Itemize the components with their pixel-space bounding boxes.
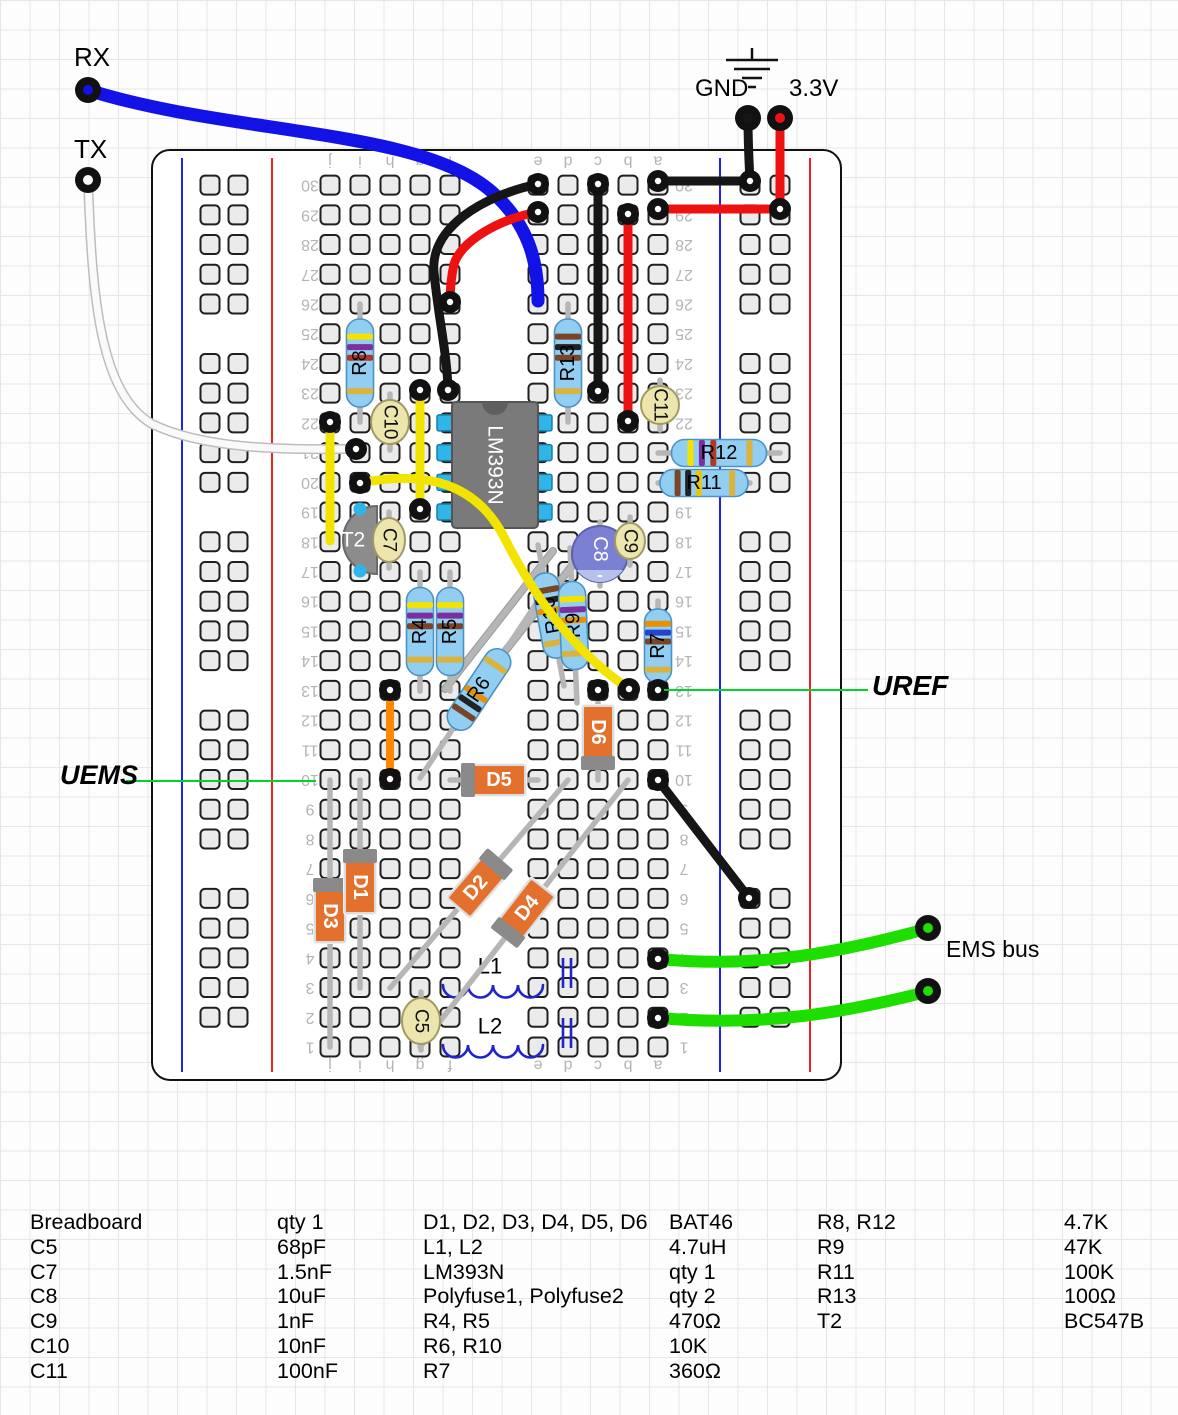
svg-text:R11: R11 — [686, 472, 721, 494]
svg-text:R8: R8 — [349, 350, 371, 376]
parts-cell-c5-r3: R11 — [817, 1262, 855, 1284]
parts-cell-c4-r1: BAT46 — [669, 1212, 733, 1234]
svg-text:25: 25 — [675, 325, 693, 342]
parts-cell-c6-r1: 4.7K — [1064, 1212, 1108, 1234]
svg-text:10: 10 — [675, 771, 693, 788]
parts-cell-c2-r6: 10nF — [277, 1336, 326, 1358]
svg-text:i: i — [358, 153, 362, 170]
parts-cell-c3-r7: R7 — [423, 1361, 450, 1383]
parts-cell-c1-r1: Breadboard — [30, 1212, 142, 1234]
parts-cell-c3-r4: Polyfuse1, Polyfuse2 — [423, 1286, 624, 1308]
component-r8: R8 — [347, 304, 374, 422]
svg-text:c: c — [594, 153, 602, 170]
svg-text:b: b — [623, 153, 632, 170]
svg-text:8: 8 — [679, 830, 688, 847]
parts-cell-c6-r4: 100Ω — [1064, 1286, 1116, 1308]
svg-text:a: a — [653, 1057, 662, 1074]
parts-cell-c1-r6: C10 — [30, 1336, 69, 1358]
svg-text:11: 11 — [676, 741, 693, 758]
parts-cell-c4-r7: 360Ω — [669, 1361, 721, 1383]
svg-text:D1: D1 — [349, 874, 371, 900]
svg-text:20: 20 — [301, 474, 319, 491]
parts-cell-c6-r3: 100K — [1064, 1262, 1114, 1284]
svg-text:14: 14 — [301, 652, 319, 669]
svg-text:26: 26 — [675, 296, 693, 313]
svg-text:D3: D3 — [319, 903, 341, 929]
rx-pin — [75, 77, 101, 103]
svg-text:C11: C11 — [650, 388, 671, 421]
svg-text:R13: R13 — [557, 345, 579, 382]
svg-text:3: 3 — [679, 979, 688, 996]
breadboard-figure: 1122334455667788991010111112121313141415… — [0, 0, 1178, 1415]
svg-text:C7: C7 — [379, 528, 400, 552]
svg-text:1: 1 — [305, 1039, 314, 1056]
svg-text:h: h — [386, 1057, 395, 1074]
parts-cell-c1-r5: C9 — [30, 1311, 57, 1333]
parts-cell-c1-r3: C7 — [30, 1262, 57, 1284]
svg-text:19: 19 — [675, 504, 693, 521]
svg-text:d: d — [564, 1057, 573, 1074]
svg-text:f: f — [447, 1057, 452, 1074]
svg-text:18: 18 — [301, 533, 319, 550]
svg-text:6: 6 — [679, 890, 688, 907]
parts-cell-c2-r7: 100nF — [277, 1361, 338, 1383]
svg-text:19: 19 — [301, 504, 319, 521]
svg-text:22: 22 — [675, 414, 693, 431]
tx-label: TX — [74, 136, 107, 162]
svg-text:4: 4 — [305, 949, 314, 966]
parts-cell-c5-r2: R9 — [817, 1237, 844, 1259]
svg-text:L2: L2 — [478, 1014, 502, 1039]
component-d6: D6 — [581, 691, 615, 780]
parts-cell-c3-r2: L1, L2 — [423, 1237, 483, 1259]
svg-text:28: 28 — [301, 236, 319, 253]
rx-label: RX — [74, 44, 110, 70]
uems-label: UEMS — [60, 762, 138, 789]
parts-cell-c6-r2: 47K — [1064, 1237, 1102, 1259]
svg-text:28: 28 — [675, 236, 693, 253]
svg-text:D5: D5 — [486, 769, 512, 791]
svg-text:b: b — [623, 1057, 632, 1074]
svg-text:T2: T2 — [341, 529, 366, 552]
svg-text:29: 29 — [301, 206, 319, 223]
parts-cell-c5-r1: R8, R12 — [817, 1212, 896, 1234]
parts-cell-c3-r3: LM393N — [423, 1262, 504, 1284]
parts-cell-c5-r5: T2 — [817, 1311, 842, 1333]
svg-text:10: 10 — [301, 771, 319, 788]
svg-text:18: 18 — [675, 533, 693, 550]
svg-text:27: 27 — [675, 266, 693, 283]
ems-pin-2 — [915, 978, 941, 1004]
svg-text:j: j — [328, 153, 333, 170]
svg-text:1: 1 — [679, 1039, 688, 1056]
svg-text:e: e — [533, 153, 542, 170]
parts-cell-c5-r4: R13 — [817, 1286, 856, 1308]
svg-text:R4: R4 — [409, 619, 431, 645]
ems-pin-1 — [915, 915, 941, 941]
svg-text:23: 23 — [301, 385, 319, 402]
ems-bus-label: EMS bus — [946, 938, 1039, 961]
svg-text:15: 15 — [675, 622, 693, 639]
v33-label: 3.3V — [789, 77, 838, 101]
svg-text:D6: D6 — [587, 719, 609, 745]
svg-text:8: 8 — [305, 830, 314, 847]
svg-text:12: 12 — [301, 712, 319, 729]
svg-text:C9: C9 — [620, 529, 641, 553]
svg-text:15: 15 — [301, 622, 319, 639]
parts-cell-c4-r4: qty 2 — [669, 1286, 716, 1308]
svg-text:3: 3 — [305, 979, 314, 996]
component-r12: R12 — [658, 440, 780, 467]
v33-pin — [767, 105, 793, 131]
svg-text:C8: C8 — [589, 536, 611, 562]
svg-text:12: 12 — [675, 712, 693, 729]
parts-cell-c6-r5: BC547B — [1064, 1311, 1144, 1333]
parts-cell-c2-r5: 1nF — [277, 1311, 314, 1333]
svg-text:9: 9 — [305, 801, 314, 818]
svg-text:5: 5 — [679, 920, 688, 937]
gnd-label: GND — [695, 77, 748, 101]
svg-text:26: 26 — [301, 296, 319, 313]
svg-text:C10: C10 — [380, 405, 401, 440]
tx-pin — [75, 167, 101, 193]
svg-text:a: a — [653, 153, 662, 170]
svg-text:c: c — [594, 1057, 602, 1074]
parts-cell-c2-r4: 10uF — [277, 1286, 326, 1308]
component-lm393n: LM393N — [437, 402, 552, 528]
parts-cell-c3-r1: D1, D2, D3, D4, D5, D6 — [423, 1212, 648, 1234]
svg-text:11: 11 — [302, 741, 319, 758]
svg-text:17: 17 — [675, 563, 693, 580]
svg-text:e: e — [533, 1057, 542, 1074]
parts-cell-c2-r1: qty 1 — [277, 1212, 324, 1234]
svg-text:25: 25 — [301, 325, 319, 342]
component-r13: R13 — [555, 304, 582, 422]
svg-text:27: 27 — [301, 266, 319, 283]
parts-cell-c3-r5: R4, R5 — [423, 1311, 490, 1333]
parts-cell-c1-r2: C5 — [30, 1237, 57, 1259]
parts-cell-c2-r2: 68pF — [277, 1237, 326, 1259]
svg-text:R7: R7 — [647, 633, 669, 659]
breadboard-page: 1122334455667788991010111112121313141415… — [0, 0, 1178, 1415]
svg-text:22: 22 — [301, 414, 319, 431]
parts-cell-c4-r5: 470Ω — [669, 1311, 721, 1333]
svg-text:7: 7 — [679, 860, 688, 877]
svg-text:16: 16 — [301, 593, 319, 610]
breadboard-base — [152, 150, 841, 1080]
svg-text:7: 7 — [305, 860, 314, 877]
svg-text:17: 17 — [301, 563, 319, 580]
parts-cell-c3-r6: R6, R10 — [423, 1336, 502, 1358]
parts-cell-c1-r4: C8 — [30, 1286, 57, 1308]
svg-text:C5: C5 — [411, 1009, 432, 1033]
svg-text:d: d — [564, 153, 573, 170]
svg-text:24: 24 — [675, 355, 693, 372]
svg-text:2: 2 — [305, 1009, 314, 1026]
svg-text:-: - — [597, 566, 603, 585]
svg-text:13: 13 — [301, 682, 319, 699]
component-d5: D5 — [450, 763, 538, 797]
uref-label: UREF — [872, 672, 948, 700]
svg-text:i: i — [358, 1057, 362, 1074]
svg-text:30: 30 — [301, 177, 319, 194]
parts-cell-c4-r3: qty 1 — [669, 1262, 716, 1284]
parts-cell-c2-r3: 1.5nF — [277, 1262, 332, 1284]
parts-cell-c4-r2: 4.7uH — [669, 1237, 726, 1259]
component-r11: R11 — [658, 470, 750, 497]
svg-text:g: g — [416, 1057, 425, 1074]
svg-text:24: 24 — [301, 355, 319, 372]
svg-text:j: j — [328, 1057, 333, 1074]
parts-cell-c4-r6: 10K — [669, 1336, 707, 1358]
parts-cell-c1-r7: C11 — [30, 1361, 68, 1383]
svg-text:LM393N: LM393N — [484, 425, 507, 504]
gnd-pin — [735, 105, 761, 131]
svg-text:16: 16 — [675, 593, 693, 610]
svg-text:R5: R5 — [439, 619, 461, 645]
svg-text:14: 14 — [675, 652, 693, 669]
component-r7: R7 — [645, 601, 672, 691]
svg-text:R12: R12 — [701, 442, 738, 464]
